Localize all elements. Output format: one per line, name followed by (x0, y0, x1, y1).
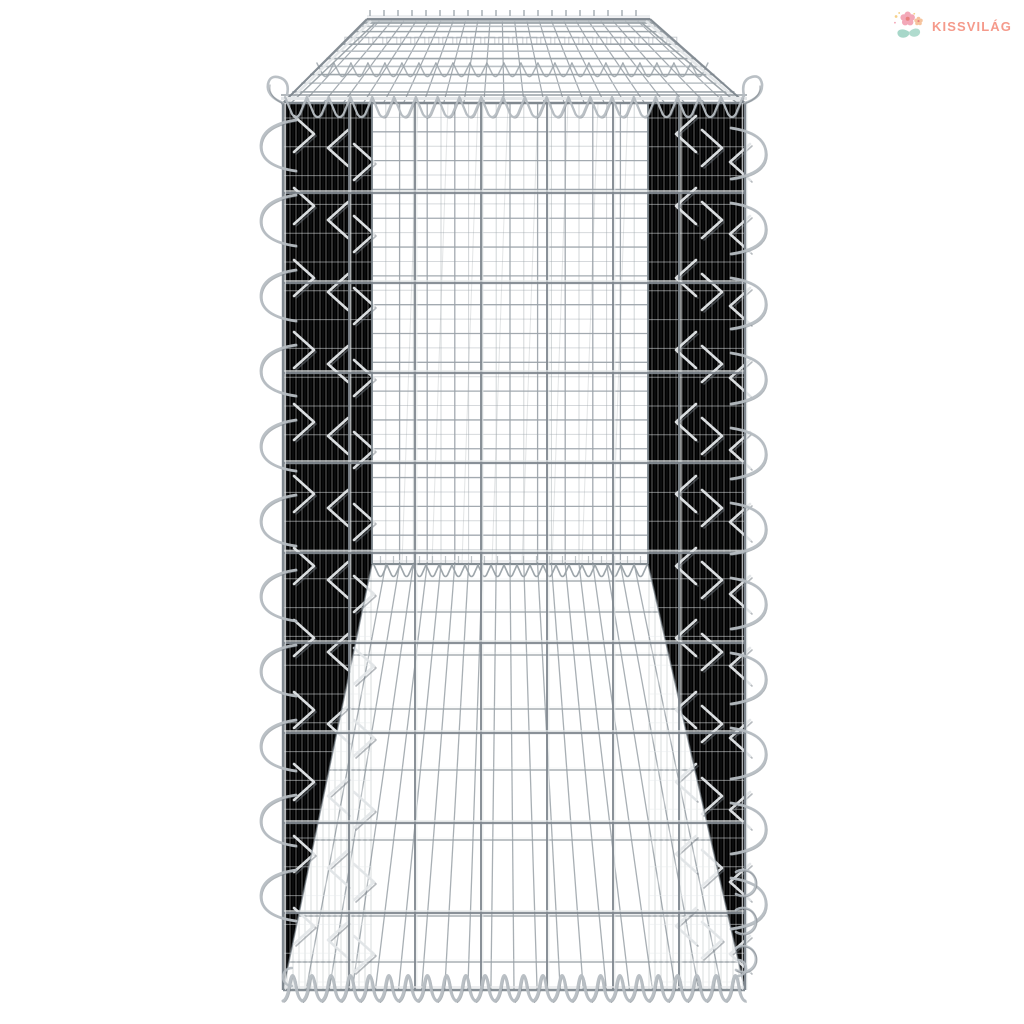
brand-name: KISSVILÁG (932, 20, 1012, 33)
product-image-gabion-basket (0, 0, 1024, 1024)
logo-sparkle (895, 15, 898, 18)
brand-logo: KISSVILÁG (893, 11, 1012, 42)
product-page-background: KISSVILÁG (0, 0, 1024, 1024)
gabion-right-wall-texture (648, 103, 752, 990)
logo-sparkle (894, 22, 896, 24)
gabion-back-wall-mesh (372, 103, 648, 564)
gabion-lid (281, 10, 747, 103)
flower-logo-icon (893, 11, 927, 42)
logo-leaf-left (897, 29, 909, 37)
logo-flower-small (914, 17, 923, 26)
logo-sparkle (898, 12, 900, 14)
logo-flower-main (900, 12, 915, 26)
logo-leaf-right (909, 28, 920, 36)
logo-sparkle (913, 13, 915, 15)
